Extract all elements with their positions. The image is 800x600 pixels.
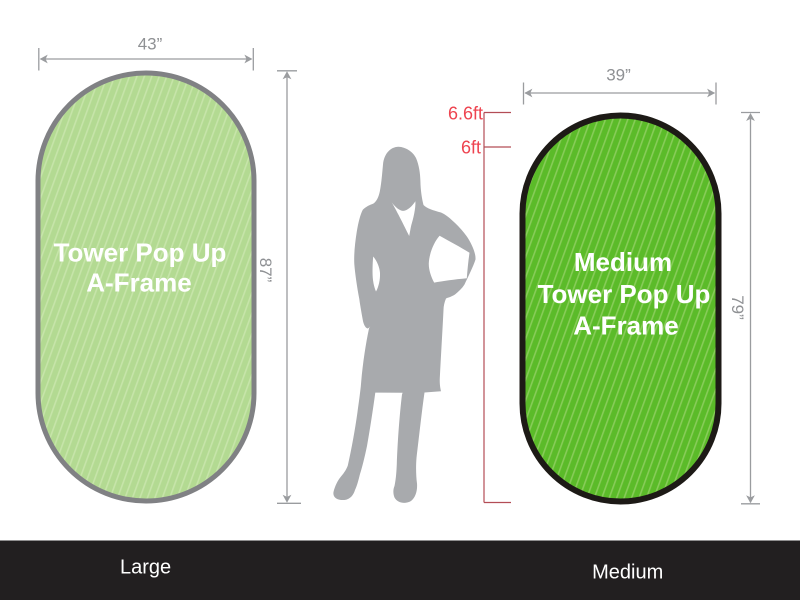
svg-text:43”: 43” [138,35,163,54]
svg-text:6.6ft: 6.6ft [448,104,483,124]
svg-text:Tower Pop Up: Tower Pop Up [538,279,711,309]
svg-text:39”: 39” [606,66,631,85]
svg-text:A-Frame: A-Frame [86,268,191,298]
svg-text:6ft: 6ft [461,138,481,158]
svg-text:79”: 79” [728,295,747,320]
svg-text:Large: Large [120,557,171,579]
svg-text:87”: 87” [256,258,275,283]
svg-text:Medium: Medium [592,562,663,584]
svg-text:Medium: Medium [574,247,672,277]
svg-text:A-Frame: A-Frame [573,311,678,341]
svg-text:Tower Pop Up: Tower Pop Up [54,238,227,268]
